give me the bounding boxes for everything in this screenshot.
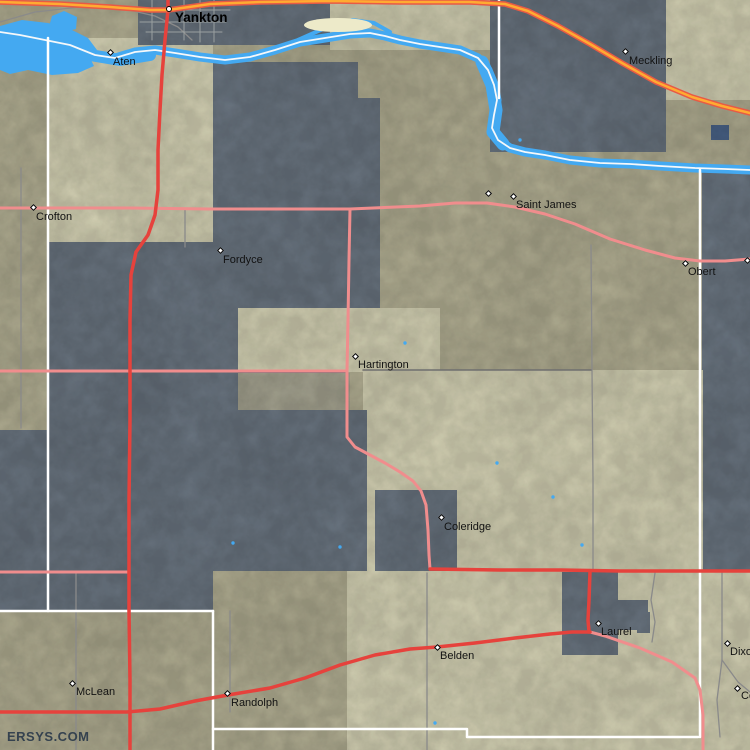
- town-marker-concord: [733, 684, 740, 691]
- town-marker-aten: [106, 48, 113, 55]
- town-label-belden: Belden: [440, 651, 474, 662]
- town-marker-crofton: [29, 203, 36, 210]
- town-label-aten: Aten: [113, 57, 136, 68]
- town-marker-fordyce: [216, 246, 223, 253]
- town-label-dixon: Dixon: [730, 647, 750, 658]
- town-marker-mclean: [68, 679, 75, 686]
- town-label-crofton: Crofton: [36, 212, 72, 223]
- town-marker-meckling: [621, 47, 628, 54]
- town-labels-layer: YanktonAtenMecklingCroftonFordyceSaint J…: [0, 0, 750, 750]
- town-label-mclean: McLean: [76, 687, 115, 698]
- town-label-yankton: Yankton: [175, 11, 228, 24]
- town-marker-coleridge: [437, 513, 444, 520]
- town-label-fordyce: Fordyce: [223, 255, 263, 266]
- town-marker-saint-james-w: [484, 189, 491, 196]
- town-label-coleridge: Coleridge: [444, 522, 491, 533]
- town-label-hartington: Hartington: [358, 360, 409, 371]
- map-canvas[interactable]: YanktonAtenMecklingCroftonFordyceSaint J…: [0, 0, 750, 750]
- town-label-randolph: Randolph: [231, 698, 278, 709]
- town-marker-randolph: [223, 689, 230, 696]
- town-label-concord: Concord: [741, 691, 750, 702]
- town-label-saint-james: Saint James: [516, 200, 577, 211]
- town-marker-obert-east: [743, 256, 750, 263]
- town-label-meckling: Meckling: [629, 56, 672, 67]
- town-label-laurel: Laurel: [601, 627, 632, 638]
- town-label-obert: Obert: [688, 267, 716, 278]
- town-marker-yankton: [166, 6, 172, 12]
- watermark: ERSYS.COM: [7, 729, 90, 744]
